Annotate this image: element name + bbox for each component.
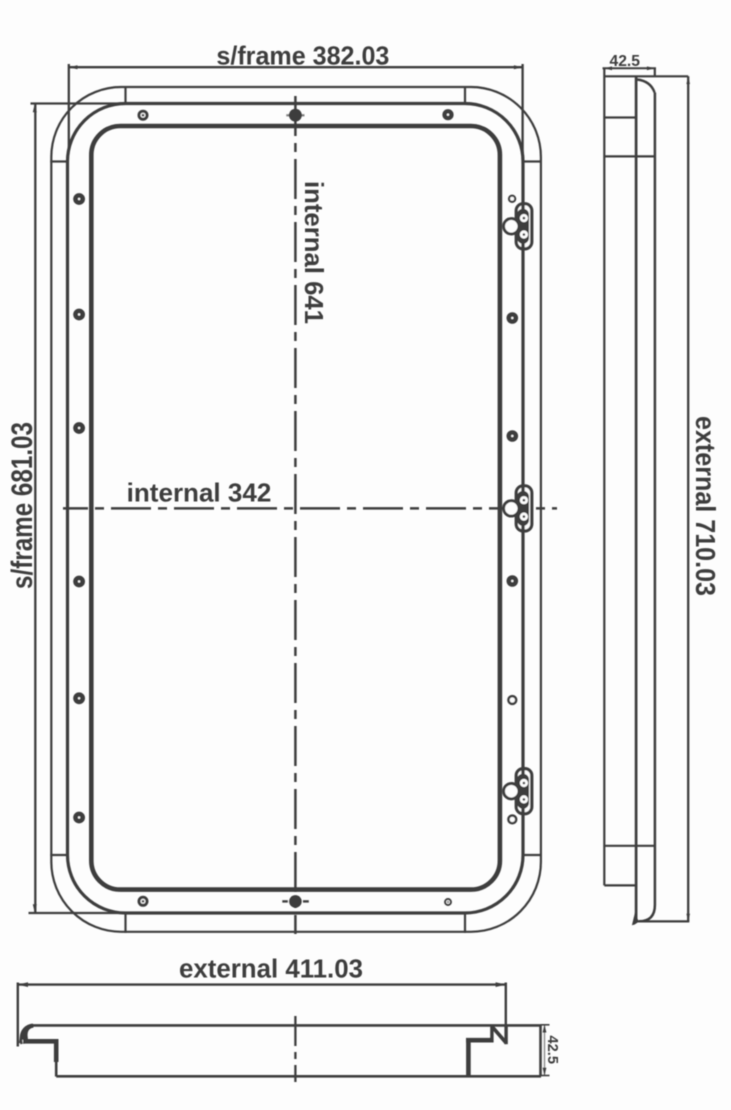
svg-text:42.5: 42.5 bbox=[610, 53, 641, 70]
svg-text:42.5: 42.5 bbox=[544, 1035, 561, 1064]
svg-text:s/frame 681.03: s/frame 681.03 bbox=[6, 422, 39, 589]
svg-text:internal 342: internal 342 bbox=[127, 478, 272, 508]
svg-text:external 710.03: external 710.03 bbox=[690, 416, 721, 596]
svg-text:external 411.03: external 411.03 bbox=[179, 956, 363, 984]
svg-text:internal 641: internal 641 bbox=[299, 181, 329, 324]
svg-text:s/frame 382.03: s/frame 382.03 bbox=[216, 40, 389, 70]
